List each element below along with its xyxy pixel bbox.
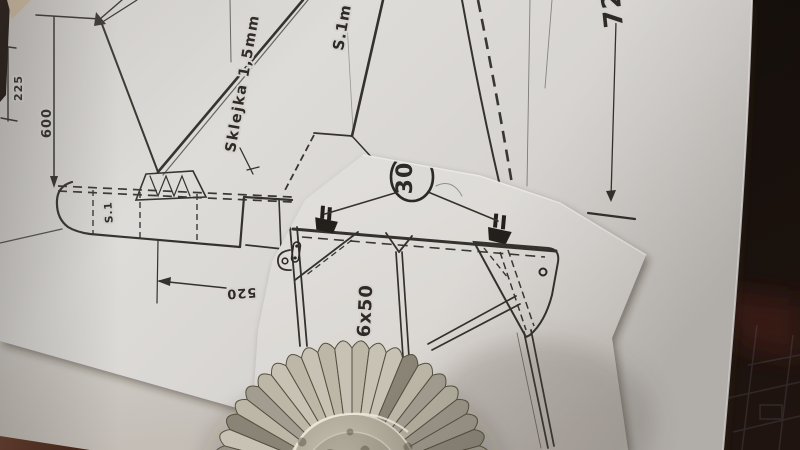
left-shade-overlay bbox=[0, 0, 120, 450]
plans-photo-canvas: 225 600 bbox=[0, 0, 800, 450]
photo-of-model-plans: 225 600 bbox=[0, 0, 800, 450]
